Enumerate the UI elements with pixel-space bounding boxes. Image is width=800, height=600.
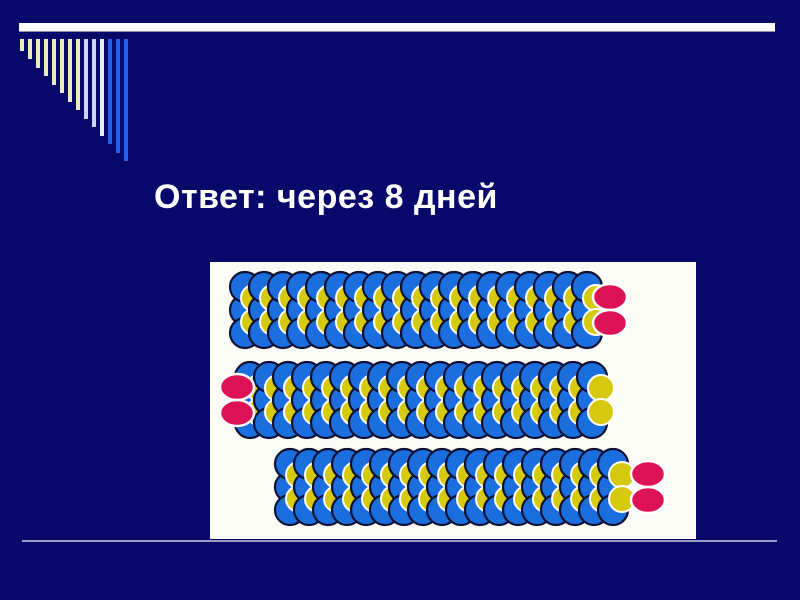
decoration-bar [20, 39, 24, 51]
decoration-bar [60, 39, 64, 93]
presentation-slide: Ответ: через 8 дней [0, 0, 800, 600]
decoration-bar [28, 39, 32, 59]
slide-title: Ответ: через 8 дней [154, 178, 498, 217]
chain-1 [230, 272, 627, 348]
chain-end-oval [631, 461, 665, 487]
chain-end-oval [220, 400, 254, 426]
decoration-bar [44, 39, 48, 76]
decoration-bar [100, 39, 104, 136]
decoration-bar [108, 39, 112, 144]
decoration-bar [116, 39, 120, 153]
decoration-bar [68, 39, 72, 102]
decoration-bar [92, 39, 96, 127]
decoration-bar [124, 39, 128, 161]
footer-divider [22, 540, 777, 542]
chain-end-oval [631, 487, 665, 513]
decoration-bar [76, 39, 80, 110]
decoration-bar [36, 39, 40, 68]
decoration-bar [52, 39, 56, 85]
chain-3 [275, 449, 665, 525]
waterfall-decoration [20, 39, 132, 161]
bead-chains-image [210, 262, 696, 539]
top-accent-bar [19, 23, 775, 32]
chain-2 [220, 362, 614, 438]
beads-illustration [210, 262, 696, 539]
chain-end-oval [593, 310, 627, 336]
chain-end-oval [593, 284, 627, 310]
chain-end-oval [220, 374, 254, 400]
decoration-bar [84, 39, 88, 119]
